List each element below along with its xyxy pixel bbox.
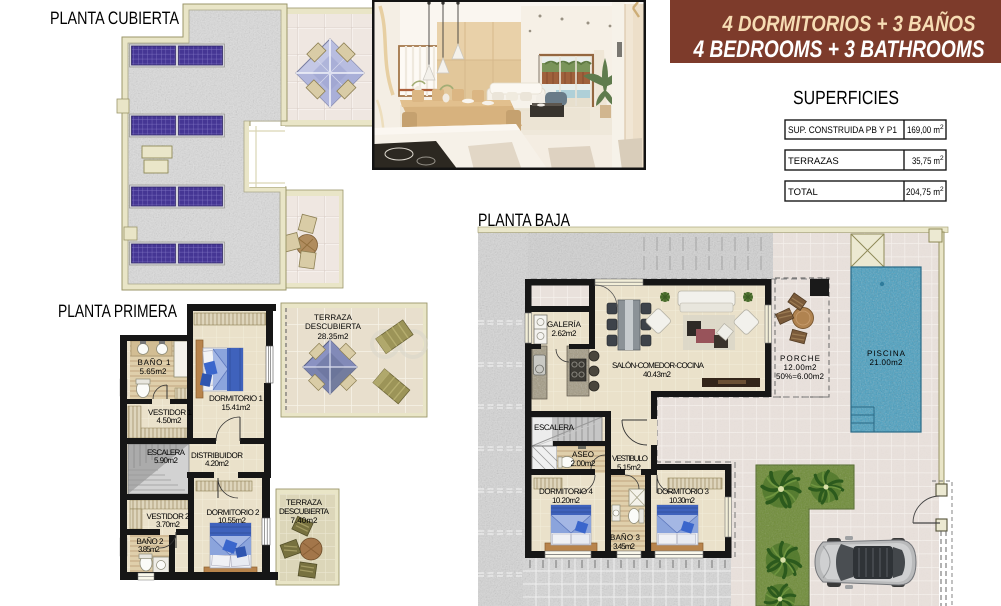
svg-text:3.85m2: 3.85m2 [138,545,161,554]
svg-text:3.70m2: 3.70m2 [156,520,181,529]
svg-text:35,75 m: 35,75 m [912,156,940,167]
svg-text:10.20m2: 10.20m2 [552,496,581,505]
svg-text:DORMITORIO 1: DORMITORIO 1 [209,394,264,403]
svg-text:2: 2 [940,186,944,193]
svg-text:4.20m2: 4.20m2 [205,459,230,468]
svg-text:10.55m2: 10.55m2 [218,516,247,525]
svg-text:21.00m2: 21.00m2 [870,358,904,367]
svg-text:204,75 m: 204,75 m [906,187,940,198]
svg-text:DORMITORIO 3: DORMITORIO 3 [657,487,710,496]
svg-text:2: 2 [940,155,944,162]
svg-text:2.62m2: 2.62m2 [552,329,578,338]
svg-text:4 DORMITORIOS + 3 BAÑOS: 4 DORMITORIOS + 3 BAÑOS [722,11,976,36]
svg-text:VESTIBULO: VESTIBULO [612,454,648,463]
svg-text:7.40m2: 7.40m2 [291,516,319,525]
svg-text:169,00 m: 169,00 m [907,125,940,136]
svg-text:2: 2 [940,124,944,131]
svg-text:TOTAL: TOTAL [788,187,818,198]
svg-text:5.90m2: 5.90m2 [154,456,179,465]
svg-text:28.35m2: 28.35m2 [318,332,350,341]
svg-text:SUPERFICIES: SUPERFICIES [793,88,899,109]
svg-text:3.45m2: 3.45m2 [613,542,636,551]
svg-text:10.30m2: 10.30m2 [669,496,696,505]
svg-text:DESCUBIERTA: DESCUBIERTA [279,507,330,516]
svg-text:2.00m2: 2.00m2 [571,459,597,468]
svg-text:GALERÍA: GALERÍA [547,320,582,329]
svg-text:50%=6.00m2: 50%=6.00m2 [776,372,825,381]
svg-text:40.43m2: 40.43m2 [643,370,672,379]
svg-text:5.15m2: 5.15m2 [617,463,642,472]
svg-text:ESCALERA: ESCALERA [534,423,575,432]
svg-text:PORCHE: PORCHE [780,354,820,363]
svg-text:PISCINA: PISCINA [867,349,906,358]
svg-text:BAÑO 1: BAÑO 1 [138,357,172,367]
svg-text:BAÑO 3: BAÑO 3 [610,532,641,542]
svg-text:TERRAZA: TERRAZA [314,313,353,322]
svg-text:TERRAZA: TERRAZA [286,498,323,507]
svg-text:TERRAZAS: TERRAZAS [788,156,839,167]
svg-text:DESCUBIERTA: DESCUBIERTA [305,322,362,331]
svg-text:ASEO: ASEO [572,450,594,459]
svg-text:SUP. CONSTRUIDA PB Y P1: SUP. CONSTRUIDA PB Y P1 [788,125,897,136]
svg-text:5.65m2: 5.65m2 [140,367,168,376]
svg-text:SALÓN-COMEDOR-COCINA: SALÓN-COMEDOR-COCINA [612,361,705,370]
svg-text:4 BEDROOMS + 3 BATHROOMS: 4 BEDROOMS + 3 BATHROOMS [693,36,985,63]
svg-text:12.00m2: 12.00m2 [784,363,818,372]
svg-text:4.50m2: 4.50m2 [157,416,183,425]
svg-text:PLANTA CUBIERTA: PLANTA CUBIERTA [50,8,179,28]
svg-text:15.41m2: 15.41m2 [222,403,252,412]
svg-text:DORMITORIO 4: DORMITORIO 4 [539,487,594,496]
svg-text:PLANTA PRIMERA: PLANTA PRIMERA [58,301,177,321]
